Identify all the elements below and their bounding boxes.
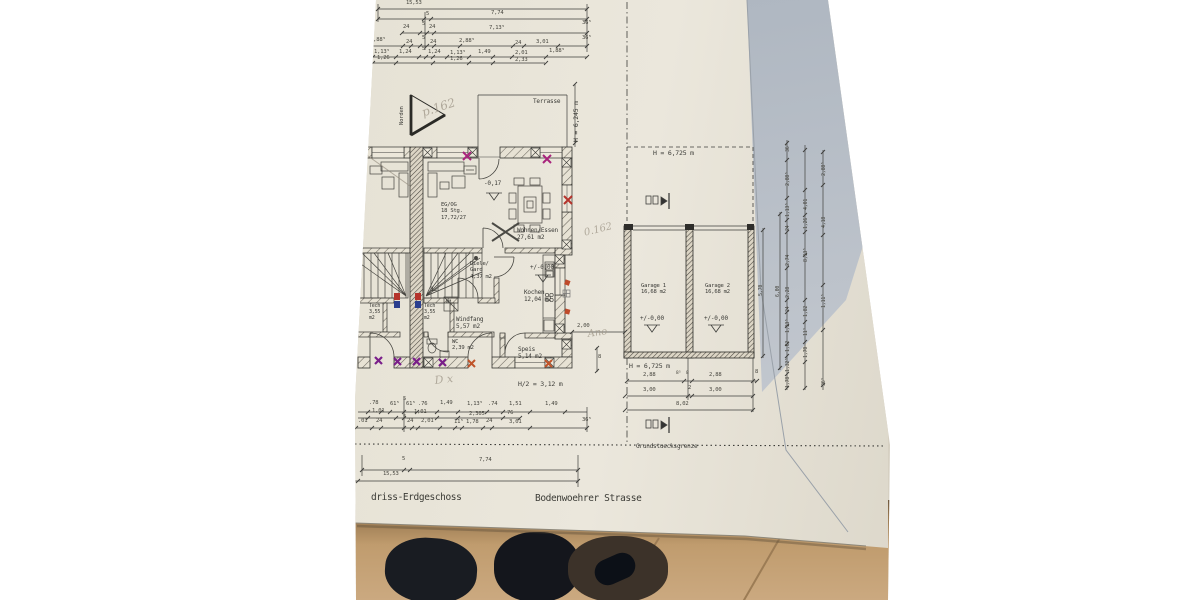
- door-swings: [370, 158, 525, 357]
- garage-roof-outline: [627, 147, 753, 224]
- property-boundary: [355, 2, 886, 446]
- section-symbol: [646, 193, 669, 433]
- north-arrow: [411, 95, 445, 135]
- staircase-right: [424, 253, 482, 298]
- terrace-outline: [478, 95, 567, 147]
- window-midlines: [372, 153, 567, 363]
- furniture: [370, 162, 570, 357]
- party-wall: [410, 147, 423, 368]
- garage-door-posts: [624, 224, 754, 230]
- pencil-marks: [361, 151, 519, 241]
- floor-plan-drawing: [0, 0, 1200, 600]
- garage-walls: [624, 226, 754, 358]
- photo-floor-plan: Norden Terrasse H = 6,245 m EG/OG 18 Stg…: [0, 0, 1200, 600]
- staircase-left: [358, 253, 408, 298]
- paper-edge: [355, 0, 866, 549]
